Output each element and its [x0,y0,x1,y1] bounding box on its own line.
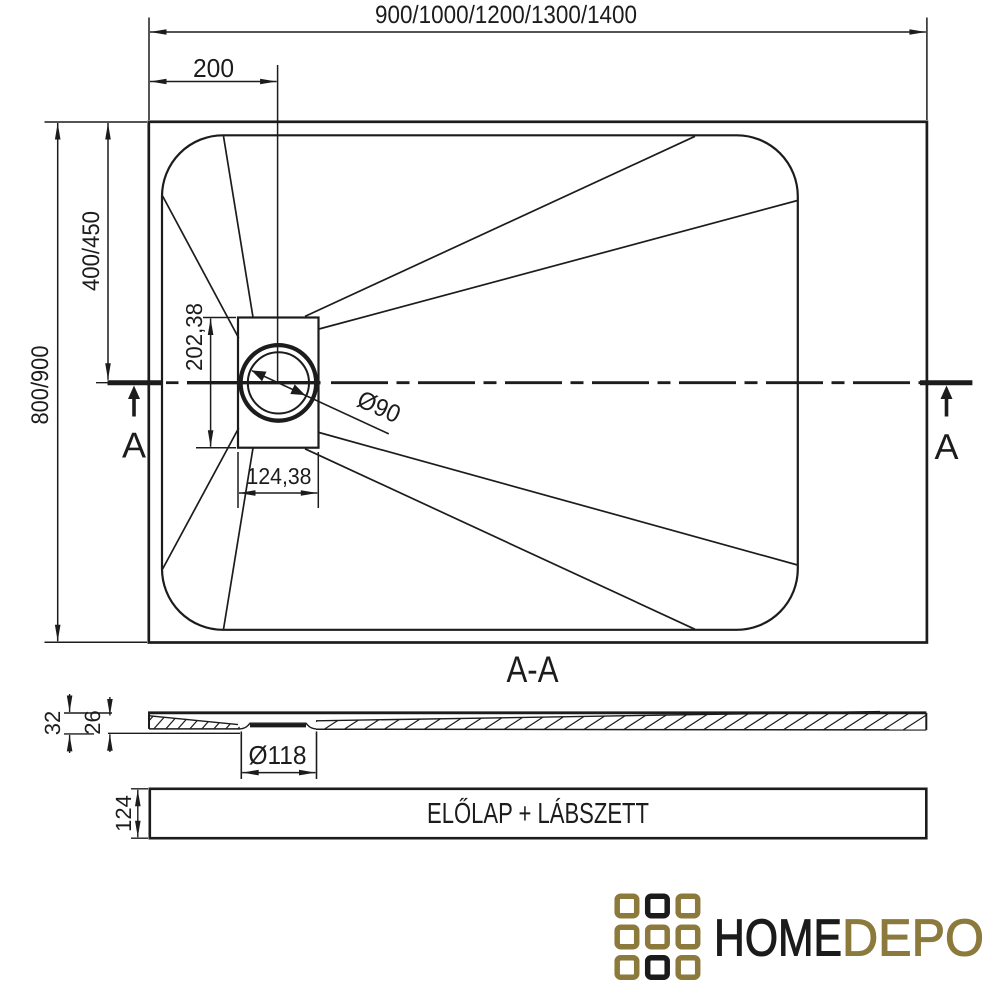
svg-text:124,38: 124,38 [247,463,312,489]
svg-text:202,38: 202,38 [181,303,207,371]
svg-text:A: A [122,425,146,466]
svg-text:ELŐLAP + LÁBSZETT: ELŐLAP + LÁBSZETT [427,797,649,830]
svg-text:A-A: A-A [507,649,559,690]
svg-text:26: 26 [80,710,105,734]
svg-text:HOME: HOME [714,910,842,968]
svg-text:900/1000/1200/1300/1400: 900/1000/1200/1300/1400 [375,1,637,29]
svg-text:Ø118: Ø118 [249,740,307,770]
svg-text:DEPO: DEPO [842,910,984,968]
svg-text:A: A [934,426,958,467]
svg-text:200: 200 [193,53,234,83]
svg-text:32: 32 [40,711,65,735]
svg-text:124: 124 [111,795,136,832]
svg-text:400/450: 400/450 [78,211,105,291]
svg-text:800/900: 800/900 [27,346,54,425]
